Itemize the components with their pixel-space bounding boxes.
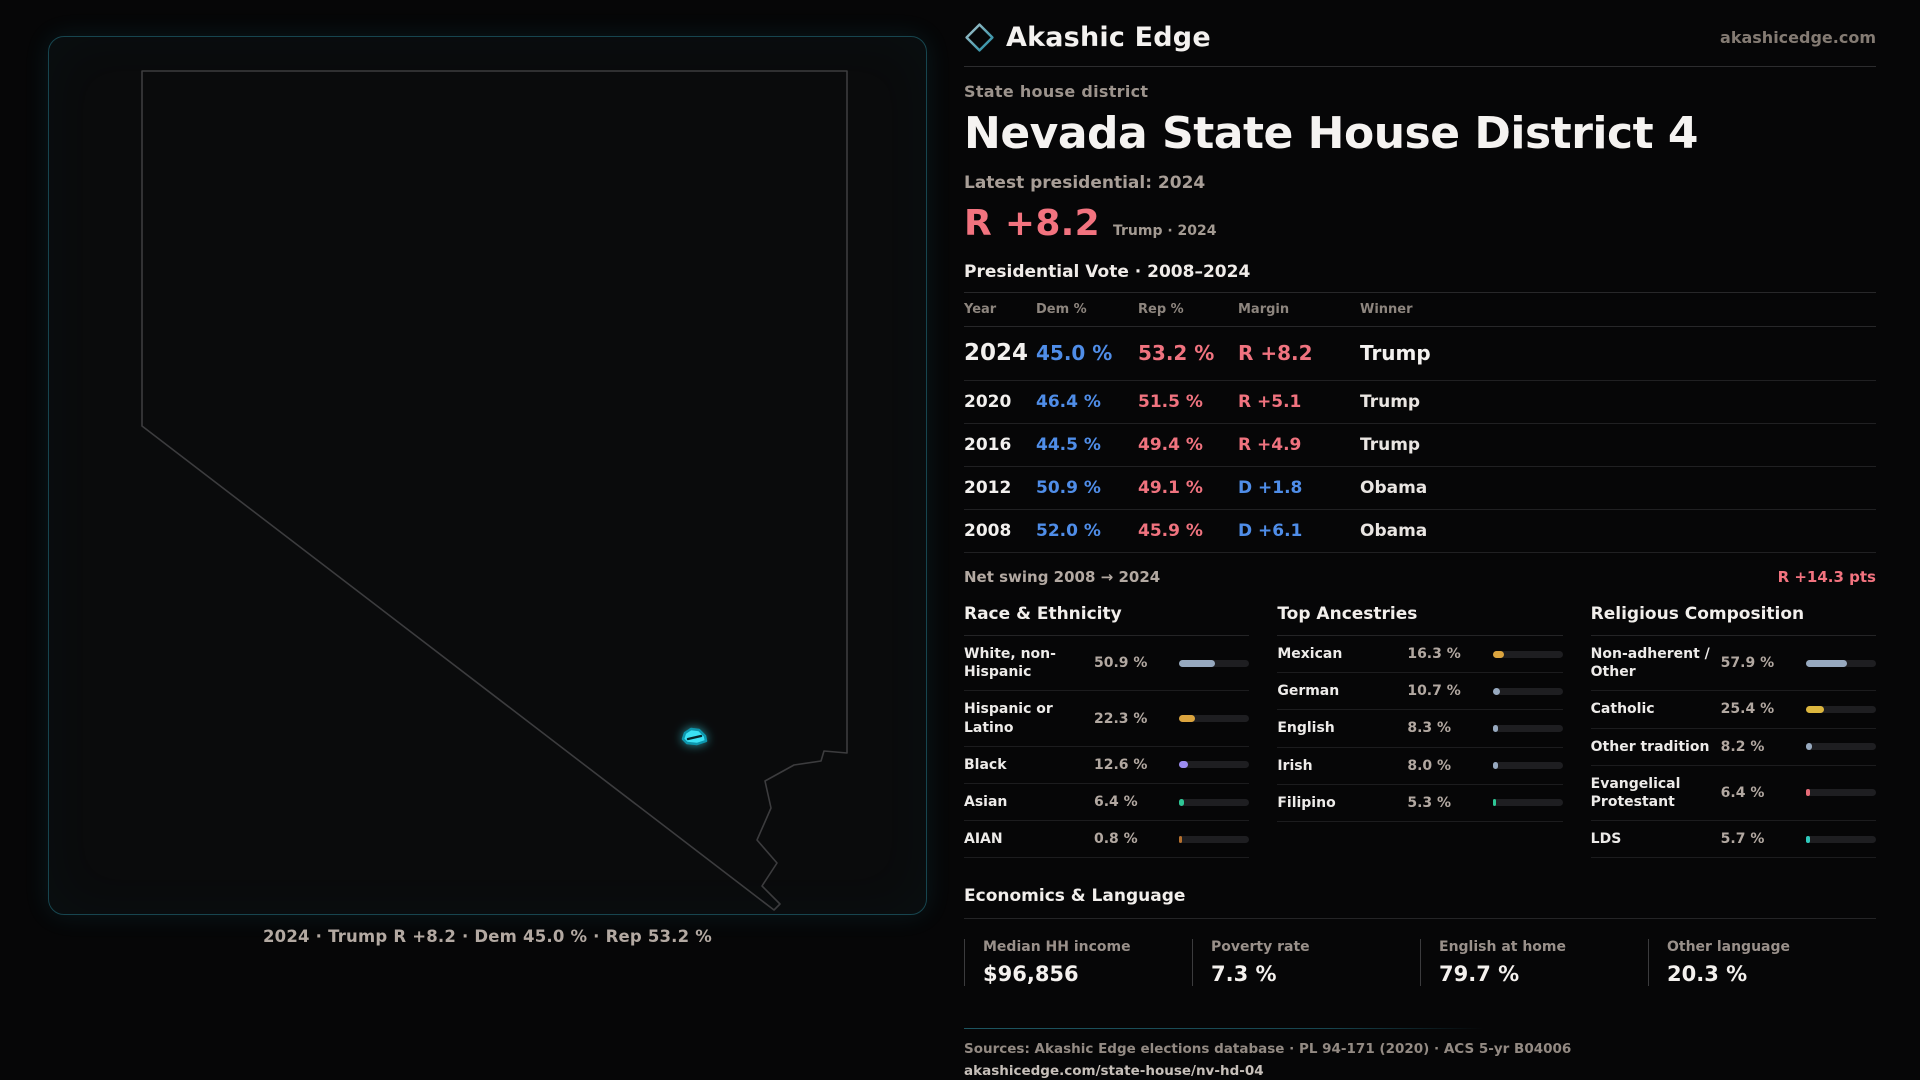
- economics-stat-value: 79.7 %: [1439, 962, 1648, 986]
- vote-col-header: Rep %: [1138, 293, 1238, 327]
- demographic-row: Hispanic or Latino22.3 %: [964, 691, 1249, 746]
- demographic-value: 8.3 %: [1407, 720, 1477, 736]
- demographic-bar-fill: [1493, 725, 1499, 732]
- demographic-value: 22.3 %: [1094, 711, 1164, 727]
- demographic-bar-track: [1493, 651, 1563, 658]
- demographic-bar-track: [1806, 660, 1876, 667]
- demographic-bar-track: [1179, 836, 1249, 843]
- district-map-panel: [48, 36, 927, 915]
- headline-margin-value: R +8.2: [964, 203, 1100, 244]
- demographic-bar-fill: [1806, 836, 1810, 843]
- demographic-bar-track: [1179, 715, 1249, 722]
- demographic-column-title: Race & Ethnicity: [964, 604, 1249, 636]
- vote-year: 2020: [964, 381, 1036, 424]
- demographic-row: Other tradition8.2 %: [1591, 729, 1876, 766]
- diamond-logo-icon: [964, 22, 995, 53]
- demographic-bar-fill: [1179, 799, 1183, 806]
- nevada-state-outline: [142, 71, 847, 910]
- demographic-bar-fill: [1493, 762, 1499, 769]
- demographic-value: 12.6 %: [1094, 757, 1164, 773]
- page-title: Nevada State House District 4: [964, 108, 1876, 159]
- demographic-bar-fill: [1806, 789, 1810, 796]
- demographic-bar-fill: [1806, 660, 1847, 667]
- demographic-value: 10.7 %: [1407, 683, 1477, 699]
- vote-dem-pct: 52.0 %: [1036, 510, 1138, 553]
- vote-dem-pct: 45.0 %: [1036, 327, 1138, 381]
- demographic-row: LDS5.7 %: [1591, 821, 1876, 858]
- vote-table-row: 201644.5 %49.4 %R +4.9Trump: [964, 424, 1876, 467]
- demographic-label: Asian: [964, 793, 1094, 811]
- economics-stat-label: English at home: [1439, 939, 1648, 955]
- vote-rep-pct: 51.5 %: [1138, 381, 1238, 424]
- vote-winner: Obama: [1360, 510, 1876, 553]
- demographic-column-title: Top Ancestries: [1277, 604, 1562, 636]
- economics-stat: Other language20.3 %: [1648, 939, 1876, 986]
- demographic-label: Other tradition: [1591, 738, 1721, 756]
- demographic-row: Filipino5.3 %: [1277, 785, 1562, 822]
- economics-title: Economics & Language: [964, 886, 1876, 919]
- demographic-label: Irish: [1277, 757, 1407, 775]
- demographic-row: English8.3 %: [1277, 710, 1562, 747]
- demographic-value: 5.7 %: [1721, 831, 1791, 847]
- vote-margin: R +8.2: [1238, 327, 1360, 381]
- vote-table-title: Presidential Vote · 2008–2024: [964, 262, 1876, 282]
- brand-site-link[interactable]: akashicedge.com: [1720, 28, 1876, 47]
- demographic-value: 8.2 %: [1721, 739, 1791, 755]
- headline-margin-context: Trump · 2024: [1113, 223, 1217, 239]
- demographic-label: German: [1277, 682, 1407, 700]
- demographic-label: Non-adherent / Other: [1591, 645, 1721, 681]
- permalink[interactable]: akashicedge.com/state-house/nv-hd-04: [964, 1063, 1876, 1079]
- demographic-bar-track: [1179, 799, 1249, 806]
- demographic-column: Religious CompositionNon-adherent / Othe…: [1591, 604, 1876, 858]
- demographic-bar-fill: [1179, 761, 1188, 768]
- vote-table-header-row: YearDem %Rep %MarginWinner: [964, 293, 1876, 327]
- demographic-bar-fill: [1179, 715, 1195, 722]
- economics-stat: English at home79.7 %: [1420, 939, 1648, 986]
- demographic-row: Non-adherent / Other57.9 %: [1591, 636, 1876, 691]
- demographic-value: 6.4 %: [1721, 785, 1791, 801]
- demographic-bar-track: [1806, 789, 1876, 796]
- presidential-vote-table: YearDem %Rep %MarginWinner 202445.0 %53.…: [964, 292, 1876, 553]
- demographic-label: Catholic: [1591, 700, 1721, 718]
- demographic-value: 16.3 %: [1407, 646, 1477, 662]
- vote-year: 2024: [964, 327, 1036, 381]
- demographic-value: 25.4 %: [1721, 701, 1791, 717]
- vote-dem-pct: 44.5 %: [1036, 424, 1138, 467]
- demographics-grid: Race & EthnicityWhite, non-Hispanic50.9 …: [964, 604, 1876, 858]
- vote-year: 2012: [964, 467, 1036, 510]
- vote-rep-pct: 49.4 %: [1138, 424, 1238, 467]
- vote-rep-pct: 53.2 %: [1138, 327, 1238, 381]
- vote-winner: Trump: [1360, 381, 1876, 424]
- demographic-bar-track: [1493, 799, 1563, 806]
- vote-col-header: Dem %: [1036, 293, 1138, 327]
- economics-stat: Median HH income$96,856: [964, 939, 1192, 986]
- economics-stat-label: Other language: [1667, 939, 1876, 955]
- demographic-column: Race & EthnicityWhite, non-Hispanic50.9 …: [964, 604, 1249, 858]
- demographic-row: Evangelical Protestant6.4 %: [1591, 766, 1876, 821]
- demographic-bar-track: [1806, 706, 1876, 713]
- footer: Sources: Akashic Edge elections database…: [964, 1028, 1876, 1079]
- vote-margin: R +4.9: [1238, 424, 1360, 467]
- demographic-label: Black: [964, 756, 1094, 774]
- vote-winner: Obama: [1360, 467, 1876, 510]
- vote-margin: R +5.1: [1238, 381, 1360, 424]
- header-bar: Akashic Edge akashicedge.com: [964, 22, 1876, 67]
- vote-winner: Trump: [1360, 327, 1876, 381]
- demographic-bar-track: [1179, 660, 1249, 667]
- map-caption: 2024 · Trump R +8.2 · Dem 45.0 % · Rep 5…: [48, 927, 927, 946]
- latest-presidential-label: Latest presidential: 2024: [964, 173, 1876, 193]
- demographic-bar-track: [1493, 725, 1563, 732]
- demographic-value: 6.4 %: [1094, 794, 1164, 810]
- economics-stat-label: Median HH income: [983, 939, 1192, 955]
- net-swing-label: Net swing 2008 → 2024: [964, 568, 1160, 586]
- economics-stats: Median HH income$96,856Poverty rate7.3 %…: [964, 939, 1876, 986]
- demographic-label: Mexican: [1277, 645, 1407, 663]
- demographic-label: LDS: [1591, 830, 1721, 848]
- vote-table-row: 200852.0 %45.9 %D +6.1Obama: [964, 510, 1876, 553]
- demographic-bar-track: [1806, 743, 1876, 750]
- kicker: State house district: [964, 82, 1876, 101]
- economics-stat-value: 7.3 %: [1211, 962, 1420, 986]
- demographic-label: Evangelical Protestant: [1591, 775, 1721, 811]
- vote-table-row: 201250.9 %49.1 %D +1.8Obama: [964, 467, 1876, 510]
- demographic-value: 5.3 %: [1407, 795, 1477, 811]
- vote-rep-pct: 49.1 %: [1138, 467, 1238, 510]
- economics-stat-value: $96,856: [983, 962, 1192, 986]
- nevada-map: [49, 37, 926, 914]
- demographic-value: 8.0 %: [1407, 758, 1477, 774]
- demographic-value: 0.8 %: [1094, 831, 1164, 847]
- demographic-row: Asian6.4 %: [964, 784, 1249, 821]
- vote-margin: D +6.1: [1238, 510, 1360, 553]
- headline-margin-block: R +8.2 Trump · 2024: [964, 203, 1876, 244]
- demographic-row: White, non-Hispanic50.9 %: [964, 636, 1249, 691]
- demographic-bar-fill: [1179, 660, 1215, 667]
- demographic-bar-track: [1806, 836, 1876, 843]
- demographic-bar-fill: [1493, 688, 1500, 695]
- demographic-column: Top AncestriesMexican16.3 %German10.7 %E…: [1277, 604, 1562, 858]
- vote-col-header: Winner: [1360, 293, 1876, 327]
- demographic-bar-fill: [1493, 799, 1497, 806]
- sources-line: Sources: Akashic Edge elections database…: [964, 1041, 1876, 1057]
- demographic-row: AIAN0.8 %: [964, 821, 1249, 858]
- vote-table-row: 202046.4 %51.5 %R +5.1Trump: [964, 381, 1876, 424]
- vote-table-row: 202445.0 %53.2 %R +8.2Trump: [964, 327, 1876, 381]
- vote-dem-pct: 50.9 %: [1036, 467, 1138, 510]
- demographic-bar-track: [1493, 688, 1563, 695]
- vote-dem-pct: 46.4 %: [1036, 381, 1138, 424]
- demographic-value: 57.9 %: [1721, 655, 1791, 671]
- demographic-value: 50.9 %: [1094, 655, 1164, 671]
- demographic-column-title: Religious Composition: [1591, 604, 1876, 636]
- demographic-label: Filipino: [1277, 794, 1407, 812]
- economics-stat-value: 20.3 %: [1667, 962, 1876, 986]
- demographic-bar-fill: [1806, 743, 1812, 750]
- demographic-row: Mexican16.3 %: [1277, 636, 1562, 673]
- economics-stat-label: Poverty rate: [1211, 939, 1420, 955]
- demographic-row: Irish8.0 %: [1277, 748, 1562, 785]
- economics-stat: Poverty rate7.3 %: [1192, 939, 1420, 986]
- brand-name: Akashic Edge: [1006, 22, 1211, 53]
- demographic-label: Hispanic or Latino: [964, 700, 1094, 736]
- vote-col-header: Year: [964, 293, 1036, 327]
- detail-panel: Akashic Edge akashicedge.com State house…: [964, 22, 1876, 1079]
- demographic-bar-fill: [1806, 706, 1824, 713]
- vote-winner: Trump: [1360, 424, 1876, 467]
- demographic-label: English: [1277, 719, 1407, 737]
- vote-margin: D +1.8: [1238, 467, 1360, 510]
- demographic-bar-track: [1179, 761, 1249, 768]
- net-swing-value: R +14.3 pts: [1778, 568, 1876, 586]
- demographic-row: Black12.6 %: [964, 747, 1249, 784]
- net-swing-row: Net swing 2008 → 2024 R +14.3 pts: [964, 556, 1876, 596]
- demographic-label: White, non-Hispanic: [964, 645, 1094, 681]
- demographic-bar-fill: [1179, 836, 1182, 843]
- demographic-label: AIAN: [964, 830, 1094, 848]
- vote-year: 2008: [964, 510, 1036, 553]
- demographic-row: German10.7 %: [1277, 673, 1562, 710]
- demographic-row: Catholic25.4 %: [1591, 691, 1876, 728]
- vote-rep-pct: 45.9 %: [1138, 510, 1238, 553]
- vote-col-header: Margin: [1238, 293, 1360, 327]
- demographic-bar-fill: [1493, 651, 1504, 658]
- demographic-bar-track: [1493, 762, 1563, 769]
- vote-year: 2016: [964, 424, 1036, 467]
